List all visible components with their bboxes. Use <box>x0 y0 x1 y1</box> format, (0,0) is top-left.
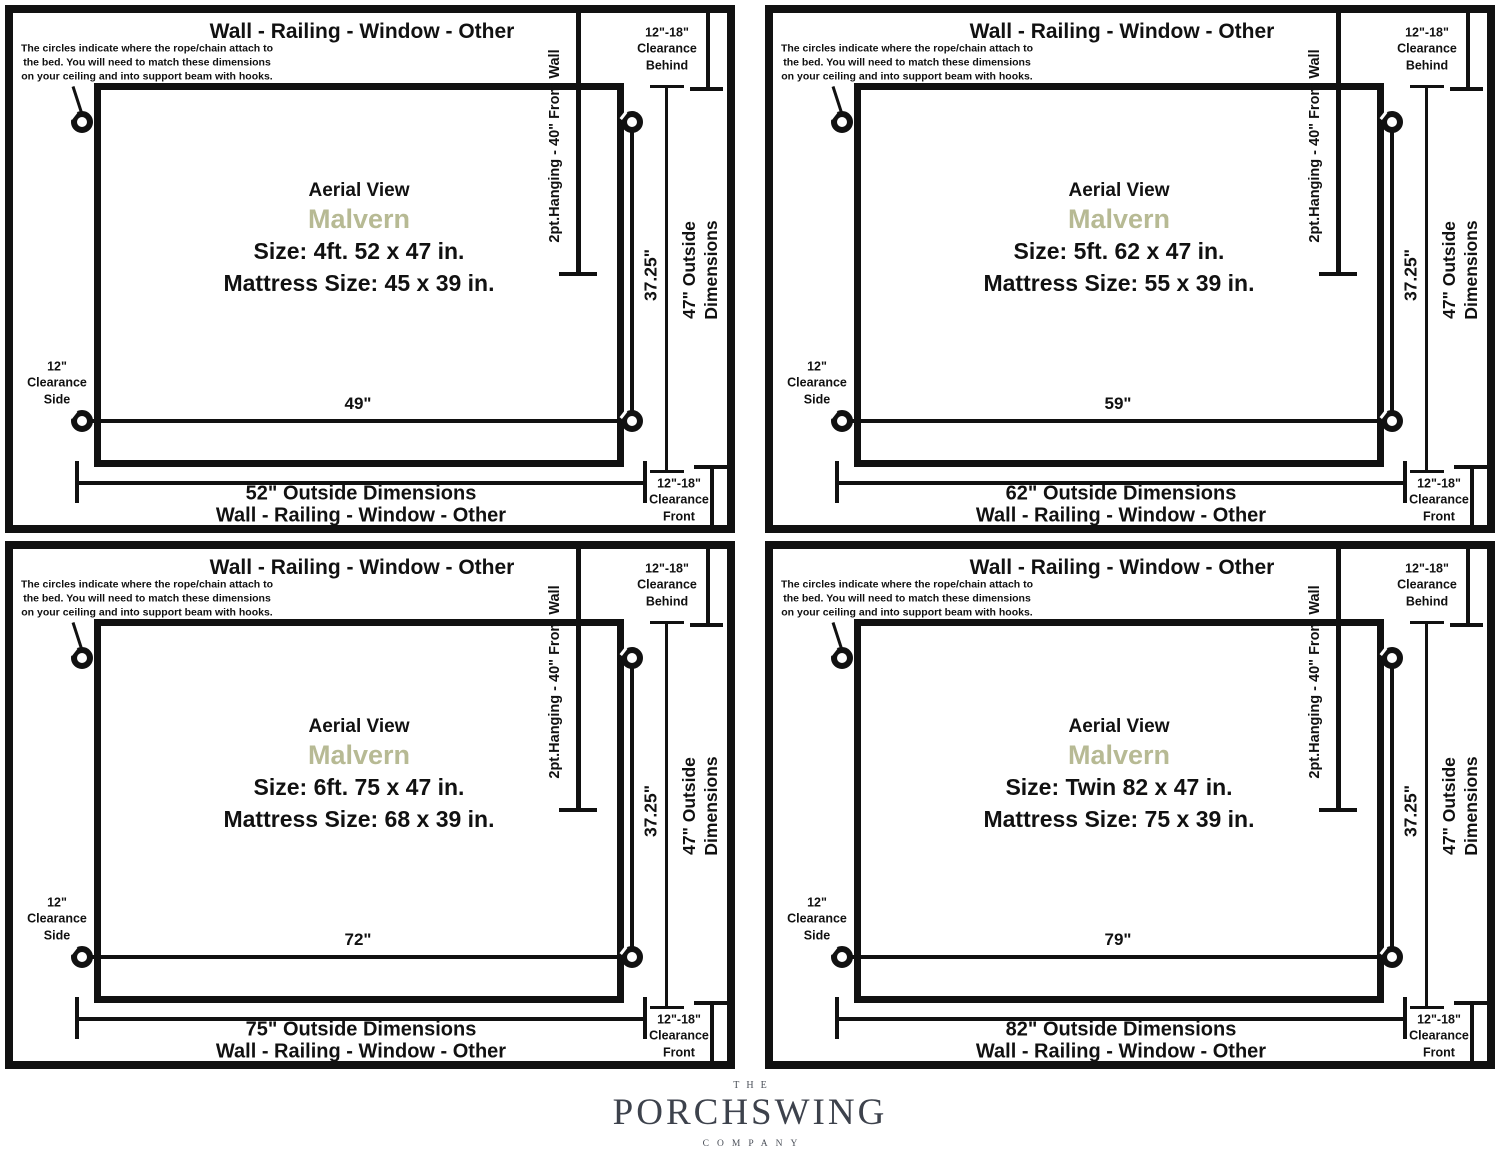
clearance-behind-label: 12"-18" Clearance Behind <box>637 25 697 74</box>
dimension-cap <box>1454 1001 1488 1005</box>
clearance-front-label: 12"-18" Clearance Front <box>649 476 709 525</box>
dimension-cap <box>1454 465 1488 469</box>
bed-info: Aerial View Malvern Size: 6ft. 75 x 47 i… <box>59 715 659 836</box>
dimension-cap <box>650 85 684 88</box>
clearance-behind-line <box>706 549 710 627</box>
dimension-cap <box>694 465 728 469</box>
clearance-behind-label: 12"-18" Clearance Behind <box>1397 561 1457 610</box>
dimension-diagram-board: Wall - Railing - Window - Other The circ… <box>0 0 1500 1159</box>
attachment-ring-icon <box>621 410 643 432</box>
inner-depth-value: 37.25" <box>641 785 662 837</box>
inner-width-line <box>838 955 1396 959</box>
outside-depth-line <box>1425 621 1428 1009</box>
clearance-side-label: 12" Clearance Side <box>27 359 87 408</box>
attachment-note: The circles indicate where the rope/chai… <box>21 42 273 85</box>
hanging-label: 2pt.Hanging - 40" From Wall <box>1307 585 1323 778</box>
attachment-ring-icon <box>621 647 643 669</box>
clearance-side-label: 12" Clearance Side <box>27 895 87 944</box>
wall-label-top: Wall - Railing - Window - Other <box>210 20 515 44</box>
logo-company-text: COMPANY <box>613 1139 888 1149</box>
bed-info: Aerial View Malvern Size: 4ft. 52 x 47 i… <box>59 179 659 300</box>
dimension-cap <box>690 623 723 627</box>
dimension-cap <box>1410 470 1444 473</box>
inner-width-value: 79" <box>1105 930 1132 950</box>
dimension-cap <box>643 461 647 503</box>
wall-label-top: Wall - Railing - Window - Other <box>970 20 1275 44</box>
dimension-cap <box>1410 1006 1444 1009</box>
dimension-cap <box>1410 85 1444 88</box>
outside-depth-line <box>665 85 668 473</box>
inner-width-value: 72" <box>345 930 372 950</box>
mattress-size-label: Mattress Size: 55 x 39 in. <box>819 267 1419 299</box>
wall-label-bottom: Wall - Railing - Window - Other <box>976 1041 1266 1064</box>
clearance-front-line <box>710 465 714 525</box>
attachment-ring-icon <box>831 946 853 968</box>
attachment-ring-icon <box>1381 647 1403 669</box>
inner-width-line <box>78 955 636 959</box>
size-label: Size: 6ft. 75 x 47 in. <box>59 771 659 803</box>
clearance-behind-line <box>706 13 710 91</box>
attachment-ring-icon <box>1381 111 1403 133</box>
mattress-size-label: Mattress Size: 68 x 39 in. <box>59 803 659 835</box>
dimension-cap <box>643 997 647 1039</box>
attachment-ring-icon <box>71 410 93 432</box>
outside-depth-label: 47" Outside Dimensions <box>1439 756 1483 855</box>
clearance-behind-line <box>1466 13 1470 91</box>
clearance-front-label: 12"-18" Clearance Front <box>1409 1012 1469 1061</box>
logo-the-text: THE <box>613 1080 888 1091</box>
dimension-cap <box>1450 87 1483 91</box>
size-label: Size: Twin 82 x 47 in. <box>819 771 1419 803</box>
outside-depth-line <box>1425 85 1428 473</box>
aerial-view-label: Aerial View <box>59 179 659 203</box>
attachment-ring-icon <box>831 647 853 669</box>
clearance-front-line <box>1470 1001 1474 1061</box>
dimension-cap <box>1403 997 1407 1039</box>
inner-depth-value: 37.25" <box>641 249 662 301</box>
clearance-front-line <box>710 1001 714 1061</box>
model-name: Malvern <box>819 739 1419 771</box>
outside-depth-label: 47" Outside Dimensions <box>679 220 723 319</box>
clearance-front-label: 12"-18" Clearance Front <box>649 1012 709 1061</box>
dimension-cap <box>650 1006 684 1009</box>
clearance-side-label: 12" Clearance Side <box>787 359 847 408</box>
outside-width-label: 52" Outside Dimensions <box>246 483 477 506</box>
inner-width-value: 59" <box>1105 394 1132 414</box>
attachment-ring-icon <box>831 111 853 133</box>
attachment-ring-icon <box>71 647 93 669</box>
dimension-cap <box>1403 461 1407 503</box>
wall-label-bottom: Wall - Railing - Window - Other <box>216 505 506 528</box>
dimension-cap <box>690 87 723 91</box>
dimension-cap <box>694 1001 728 1005</box>
attachment-ring-icon <box>1381 410 1403 432</box>
inner-depth-value: 37.25" <box>1401 785 1422 837</box>
outside-depth-line <box>665 621 668 1009</box>
inner-depth-value: 37.25" <box>1401 249 1422 301</box>
mattress-size-label: Mattress Size: 45 x 39 in. <box>59 267 659 299</box>
model-name: Malvern <box>59 203 659 235</box>
outside-width-label: 75" Outside Dimensions <box>246 1019 477 1042</box>
dimension-cap <box>835 461 839 503</box>
inner-width-line <box>838 419 1396 423</box>
dimension-cap <box>1450 623 1483 627</box>
attachment-ring-icon <box>831 410 853 432</box>
dimension-cap <box>835 997 839 1039</box>
outside-depth-label: 47" Outside Dimensions <box>679 756 723 855</box>
wall-label-top: Wall - Railing - Window - Other <box>970 556 1275 580</box>
hanging-label: 2pt.Hanging - 40" From Wall <box>547 49 563 242</box>
outside-width-label: 82" Outside Dimensions <box>1006 1019 1237 1042</box>
wall-label-top: Wall - Railing - Window - Other <box>210 556 515 580</box>
logo-brand-name: PORCHSWING <box>613 1093 888 1134</box>
clearance-behind-line <box>1466 549 1470 627</box>
diagram-panel-twin: Wall - Railing - Window - Other The circ… <box>765 541 1495 1069</box>
diagram-panel-5ft: Wall - Railing - Window - Other The circ… <box>765 5 1495 533</box>
wall-label-bottom: Wall - Railing - Window - Other <box>216 1041 506 1064</box>
aerial-view-label: Aerial View <box>59 715 659 739</box>
wall-label-bottom: Wall - Railing - Window - Other <box>976 505 1266 528</box>
dimension-cap <box>650 621 684 624</box>
dimension-cap <box>75 997 79 1039</box>
hanging-label: 2pt.Hanging - 40" From Wall <box>547 585 563 778</box>
dimension-cap <box>75 461 79 503</box>
attachment-ring-icon <box>621 946 643 968</box>
size-label: Size: 4ft. 52 x 47 in. <box>59 235 659 267</box>
clearance-behind-label: 12"-18" Clearance Behind <box>1397 25 1457 74</box>
clearance-behind-label: 12"-18" Clearance Behind <box>637 561 697 610</box>
diagram-panel-4ft: Wall - Railing - Window - Other The circ… <box>5 5 735 533</box>
dimension-cap <box>650 470 684 473</box>
clearance-front-label: 12"-18" Clearance Front <box>1409 476 1469 525</box>
attachment-ring-icon <box>621 111 643 133</box>
attachment-ring-icon <box>71 946 93 968</box>
attachment-note: The circles indicate where the rope/chai… <box>21 578 273 621</box>
size-label: Size: 5ft. 62 x 47 in. <box>819 235 1419 267</box>
attachment-ring-icon <box>1381 946 1403 968</box>
clearance-side-label: 12" Clearance Side <box>787 895 847 944</box>
aerial-view-label: Aerial View <box>819 715 1419 739</box>
bed-info: Aerial View Malvern Size: 5ft. 62 x 47 i… <box>819 179 1419 300</box>
attachment-ring-icon <box>71 111 93 133</box>
dimension-cap <box>1410 621 1444 624</box>
hanging-label: 2pt.Hanging - 40" From Wall <box>1307 49 1323 242</box>
outside-width-label: 62" Outside Dimensions <box>1006 483 1237 506</box>
attachment-note: The circles indicate where the rope/chai… <box>781 42 1033 85</box>
inner-width-line <box>78 419 636 423</box>
bed-info: Aerial View Malvern Size: Twin 82 x 47 i… <box>819 715 1419 836</box>
clearance-front-line <box>1470 465 1474 525</box>
mattress-size-label: Mattress Size: 75 x 39 in. <box>819 803 1419 835</box>
outside-depth-label: 47" Outside Dimensions <box>1439 220 1483 319</box>
aerial-view-label: Aerial View <box>819 179 1419 203</box>
inner-width-value: 49" <box>345 394 372 414</box>
porchswing-company-logo: THE PORCHSWING COMPANY <box>613 1080 888 1149</box>
model-name: Malvern <box>59 739 659 771</box>
attachment-note: The circles indicate where the rope/chai… <box>781 578 1033 621</box>
model-name: Malvern <box>819 203 1419 235</box>
diagram-panel-6ft: Wall - Railing - Window - Other The circ… <box>5 541 735 1069</box>
